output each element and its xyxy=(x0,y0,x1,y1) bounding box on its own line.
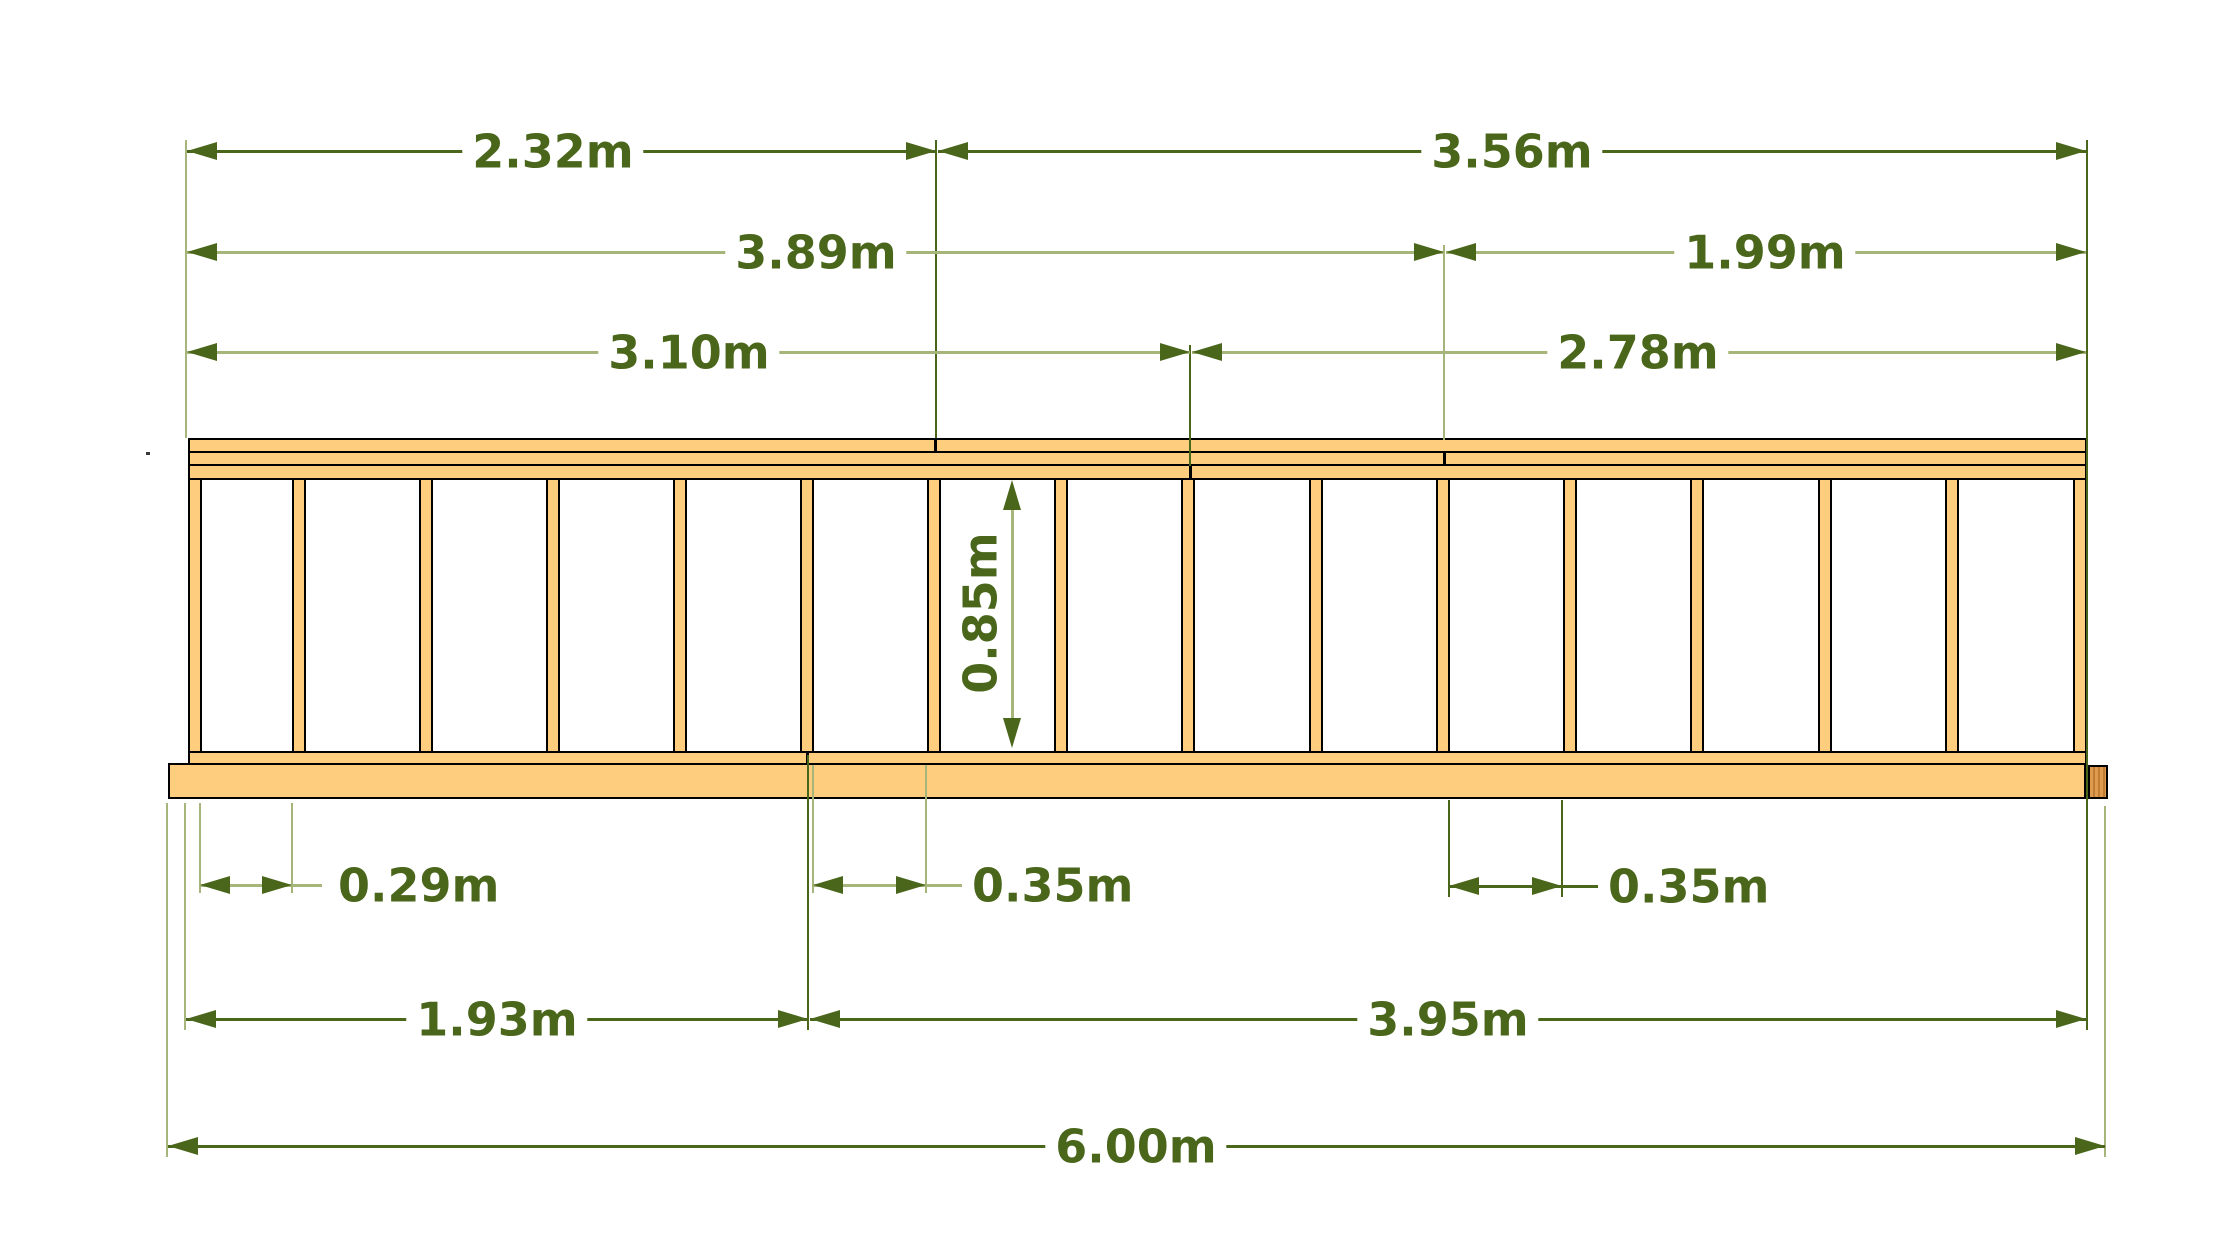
top-rail-board-3 xyxy=(188,464,2087,480)
framing-drawing-canvas: 2.32m 3.56m 3.89m 1.99m 3.10m 2.78m 0.85… xyxy=(0,0,2240,1260)
stud xyxy=(1690,478,1704,753)
dim-label-total-length: 6.00m xyxy=(1045,1122,1226,1173)
dim-label-frame-height: 0.85m xyxy=(956,522,1007,703)
dim-label-bottom-right-section: 3.95m xyxy=(1357,995,1538,1046)
arrow-down-icon xyxy=(1003,718,1021,748)
extension-line xyxy=(812,765,814,893)
arrow-left-icon xyxy=(200,876,230,894)
stud xyxy=(2073,478,2087,753)
arrow-right-icon xyxy=(262,876,292,894)
extension-line xyxy=(807,755,809,1030)
stud xyxy=(546,478,560,753)
arrow-right-icon xyxy=(2075,1137,2105,1155)
dim-label-bay-right: 0.35m xyxy=(1598,862,1779,913)
dimension-line xyxy=(1011,500,1014,728)
arrow-right-icon xyxy=(1532,877,1562,895)
dim-label-span-mid-right: 1.99m xyxy=(1674,228,1855,279)
extension-line xyxy=(2086,140,2088,1030)
dim-label-bay-middle: 0.35m xyxy=(962,861,1143,912)
arrow-right-icon xyxy=(778,1010,808,1028)
arrow-left-icon xyxy=(168,1137,198,1155)
extension-line xyxy=(1189,345,1191,466)
extension-line xyxy=(166,803,168,1157)
stud xyxy=(1181,478,1195,753)
extension-line xyxy=(184,803,186,1030)
extension-line xyxy=(2104,806,2106,1157)
extension-line xyxy=(935,140,937,438)
arrow-left-icon xyxy=(1449,877,1479,895)
arrow-left-icon xyxy=(187,343,217,361)
extension-line xyxy=(925,765,927,893)
dim-label-span-lower-left: 3.10m xyxy=(598,328,779,379)
arrow-right-icon xyxy=(2056,1010,2086,1028)
stud xyxy=(927,478,941,753)
arrow-right-icon xyxy=(1160,343,1190,361)
arrow-up-icon xyxy=(1003,480,1021,510)
stud xyxy=(673,478,687,753)
stud xyxy=(1563,478,1577,753)
stud xyxy=(1436,478,1450,753)
stud xyxy=(1818,478,1832,753)
stud xyxy=(1309,478,1323,753)
stud xyxy=(188,478,202,753)
arrow-left-icon xyxy=(1192,343,1222,361)
arrow-left-icon xyxy=(186,1010,216,1028)
stud xyxy=(419,478,433,753)
stud xyxy=(1054,478,1068,753)
arrow-left-icon xyxy=(938,142,968,160)
skid-end-block xyxy=(2088,765,2108,799)
extension-line xyxy=(185,140,187,438)
stud xyxy=(1945,478,1959,753)
arrow-left-icon xyxy=(813,876,843,894)
top-board-joint xyxy=(934,440,937,451)
arrow-right-icon xyxy=(2056,142,2086,160)
arrow-right-icon xyxy=(896,876,926,894)
arrow-right-icon xyxy=(906,142,936,160)
stud xyxy=(292,478,306,753)
arrow-left-icon xyxy=(810,1010,840,1028)
dim-label-bay-first: 0.29m xyxy=(328,861,509,912)
lower-board-joint xyxy=(1189,466,1192,478)
extension-line xyxy=(1443,245,1445,440)
stud xyxy=(800,478,814,753)
arrow-right-icon xyxy=(2056,343,2086,361)
dim-label-span-lower-right: 2.78m xyxy=(1547,328,1728,379)
dim-label-span-mid-left: 3.89m xyxy=(725,228,906,279)
arrow-right-icon xyxy=(2056,243,2086,261)
dim-label-span-top-left: 2.32m xyxy=(462,127,643,178)
skid-plate xyxy=(168,763,2086,799)
middle-board-joint xyxy=(1443,453,1446,464)
dim-label-bottom-left-section: 1.93m xyxy=(406,995,587,1046)
arrow-left-icon xyxy=(1446,243,1476,261)
dim-label-span-top-right: 3.56m xyxy=(1421,127,1602,178)
stray-dot xyxy=(146,452,150,455)
arrow-left-icon xyxy=(187,243,217,261)
arrow-right-icon xyxy=(1414,243,1444,261)
arrow-left-icon xyxy=(187,142,217,160)
